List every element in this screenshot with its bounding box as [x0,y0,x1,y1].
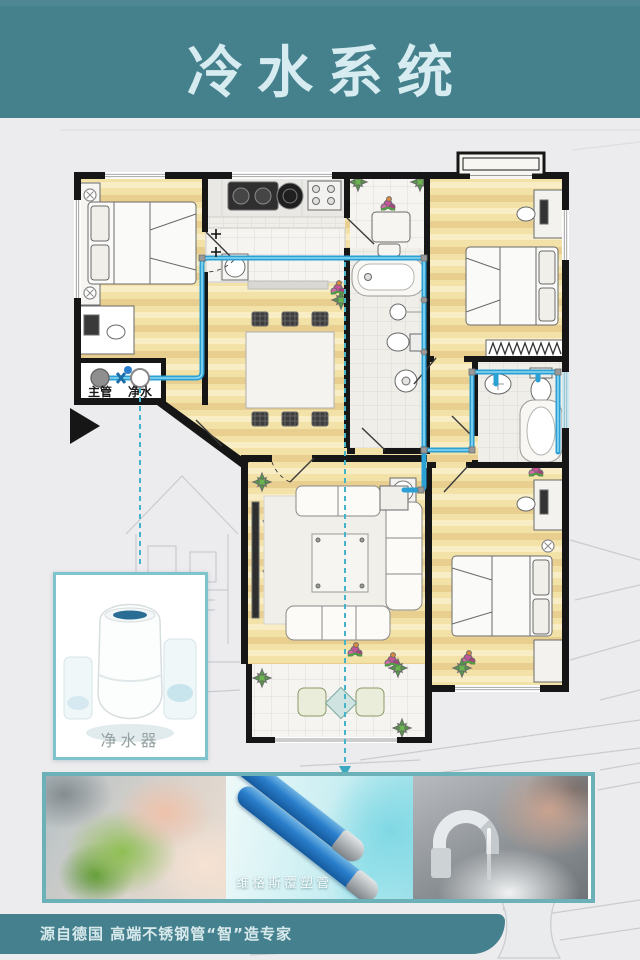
poster-page: 冷水系统 [0,0,640,960]
footer-tagline: 源自德国 高端不锈钢管“智”造专家 [40,914,292,954]
purifier-opening [113,611,147,620]
main-pipe-label: 主管 [88,384,112,399]
desk-top-right [534,190,564,238]
toilet-1 [387,333,409,351]
basin-1 [390,304,406,320]
washing-vegetables-photo [46,776,226,899]
desk-bottom-right [534,480,564,530]
tv-cabinet [252,502,259,618]
entrance-arrow [70,408,100,444]
balcony-chair [298,688,326,716]
dining-table [246,332,334,408]
balcony-chair [356,688,384,716]
coated-pipes-photo: 维格斯覆塑管 [226,776,413,899]
utility-table [372,212,410,242]
photo-strip: 维格斯覆塑管 [42,772,595,903]
washing-face-photo [413,776,588,899]
faucet-base [431,848,451,878]
sofa-right [386,502,422,610]
purifier-caption: 净水器 [56,727,205,751]
footer-ribbon: 源自德国 高端不锈钢管“智”造专家 [0,914,505,954]
water-jet [487,828,491,880]
sofa-bottom [286,606,390,640]
purifier-card: 净水器 [53,572,208,760]
top-balcony [458,153,544,175]
gas-panel [308,181,341,210]
coffee-table [312,534,368,592]
pipe-caption: 维格斯覆塑管 [236,872,332,891]
range-hood [277,183,303,209]
